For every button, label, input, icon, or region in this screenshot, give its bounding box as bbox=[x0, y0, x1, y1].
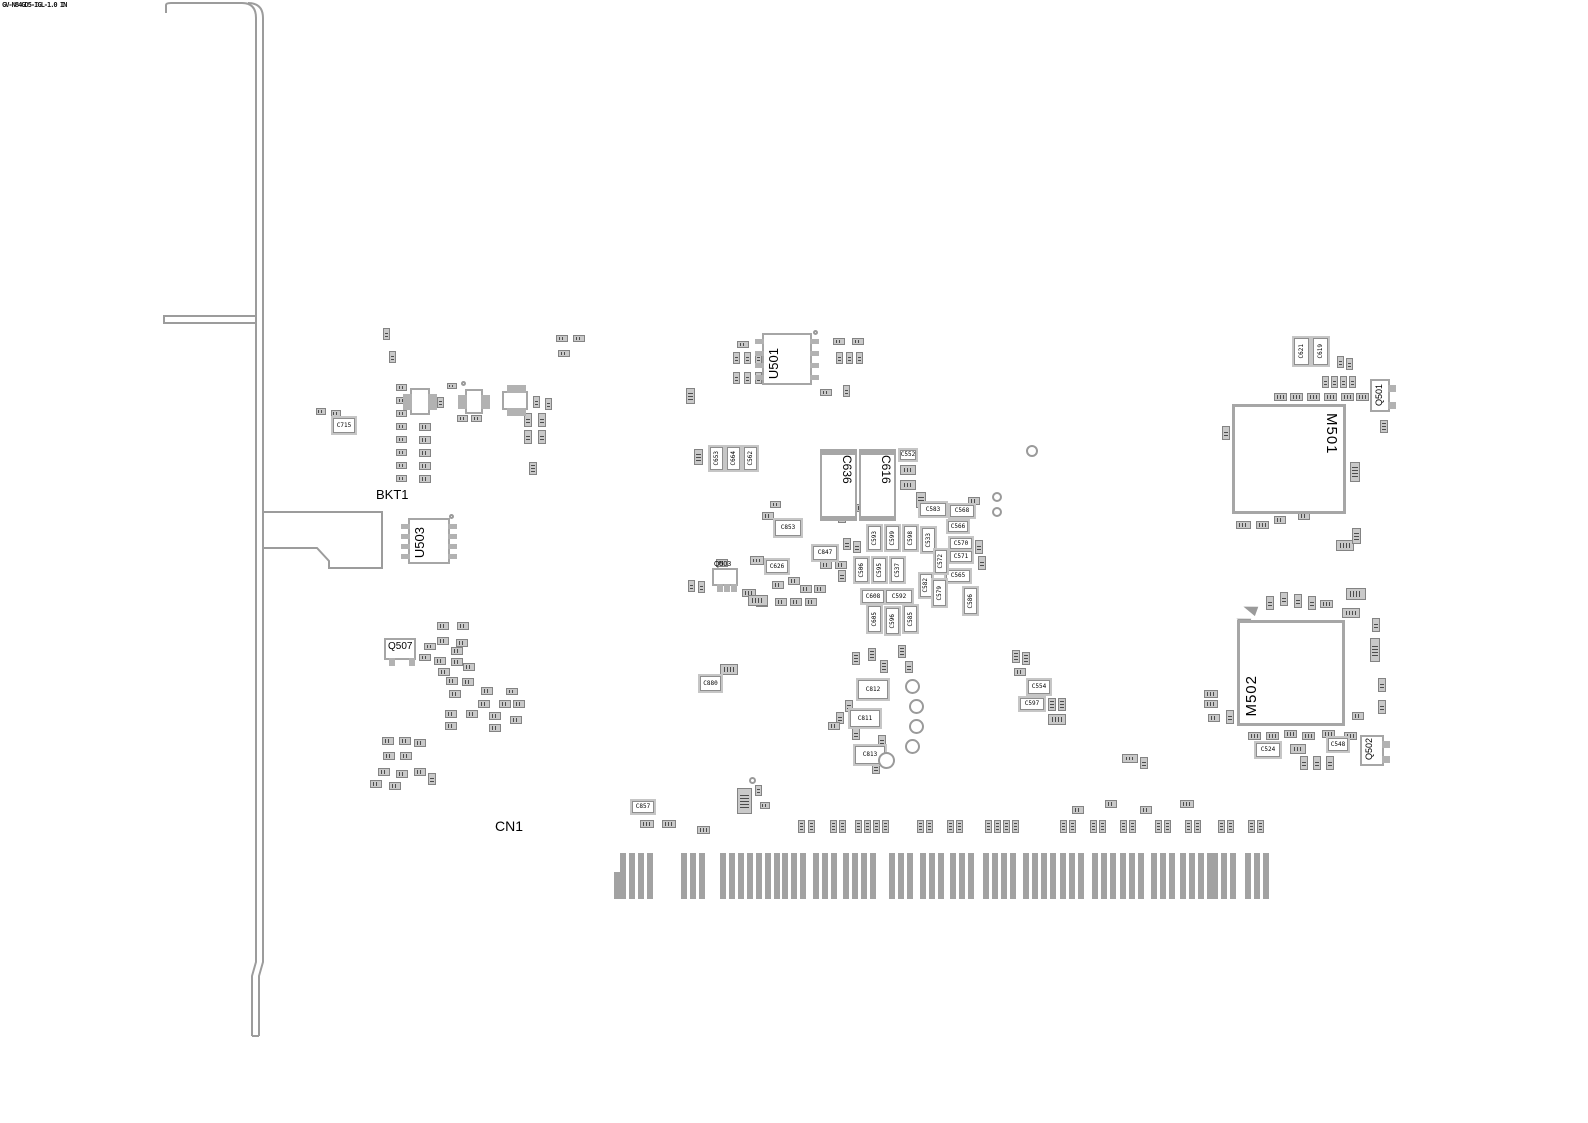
cn1-edge-finger bbox=[1169, 853, 1175, 899]
component-passive bbox=[1208, 714, 1220, 722]
chip-pin bbox=[409, 658, 415, 666]
component-passive bbox=[438, 668, 450, 676]
component-c593: C593 bbox=[868, 526, 881, 550]
component-passive bbox=[396, 436, 407, 443]
chip-m502: M502 bbox=[1237, 620, 1345, 726]
component-label: C621 bbox=[1299, 344, 1305, 358]
cn1-edge-finger bbox=[813, 853, 819, 899]
component-passive bbox=[1022, 652, 1030, 665]
component-passive bbox=[1222, 426, 1230, 440]
component-passive bbox=[573, 335, 585, 342]
component-passive bbox=[880, 660, 888, 673]
component-passive bbox=[697, 826, 710, 834]
component-passive bbox=[538, 413, 546, 427]
component-passive bbox=[419, 423, 431, 431]
bkt1-outline bbox=[263, 512, 382, 568]
component-passive bbox=[868, 648, 876, 661]
component-c608: C608 bbox=[862, 590, 884, 603]
chip-pin bbox=[755, 363, 764, 368]
bracket-inner-edge bbox=[166, 3, 256, 1036]
component-c548: C548 bbox=[1328, 738, 1348, 751]
cn1-edge-finger bbox=[870, 853, 876, 899]
cn1-edge-finger bbox=[774, 853, 780, 899]
component-passive bbox=[1342, 608, 1360, 618]
cn1-edge-finger bbox=[889, 853, 895, 899]
chip-label: U503 bbox=[412, 527, 427, 558]
component-passive bbox=[1194, 820, 1201, 833]
component-passive bbox=[852, 338, 864, 345]
component-passive bbox=[389, 351, 396, 363]
chip-pin bbox=[1388, 385, 1396, 392]
component-passive bbox=[1090, 820, 1097, 833]
component-passive bbox=[744, 372, 751, 384]
via-ring bbox=[749, 777, 756, 784]
component-passive bbox=[1346, 588, 1366, 600]
cn1-edge-finger bbox=[1001, 853, 1007, 899]
component-c597: C597 bbox=[1020, 698, 1044, 710]
cn1-edge-finger bbox=[1060, 853, 1066, 899]
component-passive bbox=[800, 585, 812, 593]
component-passive bbox=[378, 768, 390, 776]
cn1-edge-finger bbox=[747, 853, 753, 899]
component-passive bbox=[510, 716, 522, 724]
pci-bracket-outline bbox=[0, 0, 1588, 1123]
component-passive bbox=[529, 462, 537, 475]
cn1-edge-finger bbox=[959, 853, 965, 899]
chip-pin bbox=[448, 534, 457, 539]
chip-pin bbox=[389, 658, 395, 666]
chip-label: Q507 bbox=[388, 641, 412, 652]
component-c653: C653 bbox=[710, 447, 723, 470]
component-passive bbox=[1099, 820, 1106, 833]
component-passive bbox=[1313, 756, 1321, 770]
chip-q502: Q502 bbox=[1360, 735, 1384, 766]
component-passive bbox=[396, 423, 407, 430]
cn1-edge-finger bbox=[1092, 853, 1098, 899]
via-ring bbox=[905, 739, 920, 754]
component-c570: C570 bbox=[950, 538, 972, 549]
component-passive bbox=[1069, 820, 1076, 833]
component-c537: C537 bbox=[891, 558, 904, 582]
component-passive bbox=[853, 541, 861, 553]
component-passive bbox=[419, 475, 431, 483]
component-passive bbox=[489, 712, 501, 720]
capacitor-c636: C636 bbox=[820, 449, 857, 521]
component-passive bbox=[1122, 754, 1138, 763]
component-c554: C554 bbox=[1028, 680, 1050, 694]
component-passive bbox=[805, 598, 817, 606]
cn1-edge-finger bbox=[1110, 853, 1116, 899]
component-label: C566 bbox=[951, 524, 965, 530]
component-label: C599 bbox=[890, 531, 896, 545]
component-label: C548 bbox=[1331, 742, 1345, 748]
component-passive bbox=[414, 768, 426, 776]
component-passive bbox=[499, 700, 511, 708]
component-passive bbox=[1352, 528, 1361, 544]
component-passive bbox=[1048, 698, 1056, 711]
component-passive bbox=[414, 739, 426, 747]
component-label: C598 bbox=[908, 531, 914, 545]
component-passive bbox=[1284, 730, 1297, 738]
component-passive bbox=[686, 388, 695, 404]
cn1-edge-finger bbox=[1010, 853, 1016, 899]
chip-pin bbox=[448, 524, 457, 529]
component-passive bbox=[1072, 806, 1084, 814]
component-passive bbox=[556, 335, 568, 342]
cn1-edge-finger bbox=[822, 853, 828, 899]
component-label: C524 bbox=[1261, 747, 1275, 753]
component-label: C585 bbox=[908, 612, 914, 626]
cn1-edge-finger bbox=[738, 853, 744, 899]
component-passive bbox=[396, 462, 407, 469]
component-passive bbox=[370, 780, 382, 788]
component-c583: C583 bbox=[920, 503, 946, 516]
component-passive bbox=[383, 752, 395, 760]
component-passive bbox=[419, 462, 431, 470]
component-passive bbox=[489, 724, 501, 732]
component-passive bbox=[1380, 420, 1388, 433]
component-passive bbox=[1014, 668, 1026, 676]
component-passive bbox=[445, 722, 457, 730]
chip-label: Q501 bbox=[1374, 384, 1384, 406]
component-label: C853 bbox=[781, 525, 795, 531]
component-passive bbox=[828, 722, 840, 730]
cn1-edge-finger bbox=[831, 853, 837, 899]
component-label: C568 bbox=[955, 508, 969, 514]
cn1-edge-finger bbox=[907, 853, 913, 899]
component-passive bbox=[382, 737, 394, 745]
component-passive bbox=[396, 449, 407, 456]
chip-pin bbox=[810, 375, 819, 380]
cn1-edge-finger bbox=[782, 853, 788, 899]
component-passive bbox=[843, 538, 851, 550]
component-label: C813 bbox=[863, 752, 877, 758]
component-passive bbox=[445, 710, 457, 718]
component-label: C653 bbox=[714, 451, 720, 465]
chip-u503: U503 bbox=[408, 518, 450, 564]
cn1-edge-finger bbox=[765, 853, 771, 899]
component-label: C619 bbox=[1318, 344, 1324, 358]
component-passive bbox=[400, 752, 412, 760]
cn1-edge-finger bbox=[1120, 853, 1126, 899]
component-passive bbox=[419, 436, 431, 444]
chip-pin bbox=[755, 375, 764, 380]
chip-pin bbox=[724, 584, 730, 592]
component-passive bbox=[873, 820, 880, 833]
component-passive bbox=[1012, 650, 1020, 663]
capacitor-label: C636 bbox=[840, 455, 854, 484]
cn1-edge-finger bbox=[1041, 853, 1047, 899]
component-label: C605 bbox=[872, 612, 878, 626]
component-label: C565 bbox=[951, 573, 965, 579]
component-passive bbox=[788, 577, 800, 585]
component-passive bbox=[1204, 690, 1218, 698]
cn1-edge-finger bbox=[720, 853, 726, 899]
component-label: C579 bbox=[937, 586, 943, 600]
chip-pin bbox=[755, 339, 764, 344]
component-passive bbox=[733, 352, 740, 364]
cn1-edge-finger bbox=[1032, 853, 1038, 899]
component-passive bbox=[836, 352, 843, 364]
component-passive bbox=[856, 352, 863, 364]
component-passive bbox=[1155, 820, 1162, 833]
via-ring bbox=[909, 719, 924, 734]
cn1-edge-finger bbox=[983, 853, 989, 899]
component-passive bbox=[917, 820, 924, 833]
chip-label: M501 bbox=[1323, 413, 1340, 455]
cn1-edge-finger bbox=[638, 853, 644, 899]
component-label: C506 bbox=[859, 563, 865, 577]
component-label: C596 bbox=[890, 614, 896, 628]
component-passive bbox=[419, 449, 431, 457]
component-label: C572 bbox=[938, 554, 944, 568]
component-passive bbox=[1320, 600, 1333, 608]
component-c857: C857 bbox=[632, 801, 654, 813]
chip-pin bbox=[810, 339, 819, 344]
component-passive bbox=[1218, 820, 1225, 833]
component-passive bbox=[419, 654, 431, 661]
component-passive bbox=[839, 820, 846, 833]
component-passive bbox=[1274, 516, 1286, 524]
component-passive bbox=[533, 396, 540, 408]
component-passive bbox=[978, 556, 986, 570]
component-passive bbox=[1352, 712, 1364, 720]
component-c605: C605 bbox=[868, 606, 881, 632]
component-passive bbox=[1350, 462, 1360, 482]
cn1-edge-finger bbox=[629, 853, 635, 899]
component-label: C593 bbox=[872, 531, 878, 545]
cn1-edge-finger bbox=[852, 853, 858, 899]
cn1-edge-finger bbox=[1101, 853, 1107, 899]
cn1-edge-finger bbox=[1245, 853, 1251, 899]
via-ring bbox=[905, 679, 920, 694]
component-c552: C552 bbox=[900, 450, 916, 460]
chip-label: Q503 bbox=[714, 561, 731, 568]
component-passive bbox=[864, 820, 871, 833]
component-passive bbox=[1129, 820, 1136, 833]
chip-pin bbox=[403, 405, 412, 410]
component-passive bbox=[1340, 376, 1347, 388]
component-passive bbox=[814, 585, 826, 593]
component-label: C597 bbox=[1025, 701, 1039, 707]
component-passive bbox=[760, 802, 770, 809]
chip-pin bbox=[717, 584, 723, 592]
component-label: C537 bbox=[895, 563, 901, 577]
component-passive bbox=[1302, 732, 1315, 740]
component-passive bbox=[1257, 820, 1264, 833]
pcb-assembly-drawing: GV-N84GD5-IGL-1.0 IN BKT1 CN1 C715C653C6… bbox=[0, 0, 1588, 1123]
component-c596: C596 bbox=[886, 608, 899, 634]
component-passive bbox=[770, 501, 781, 508]
component-passive bbox=[882, 820, 889, 833]
component-label: C880 bbox=[703, 681, 717, 687]
component-passive bbox=[1337, 356, 1344, 368]
component-passive bbox=[733, 372, 740, 384]
chip-u501: U501 bbox=[762, 333, 812, 385]
component-passive bbox=[737, 341, 749, 348]
chip-label: U501 bbox=[766, 348, 781, 379]
component-passive bbox=[755, 785, 762, 796]
component-c598: C598 bbox=[904, 526, 917, 550]
cn1-edge-finger bbox=[1189, 853, 1195, 899]
component-c506: C506 bbox=[855, 558, 868, 582]
chip-pin bbox=[428, 405, 437, 410]
component-passive bbox=[457, 415, 468, 422]
component-passive bbox=[1003, 820, 1010, 833]
component-c533: C533 bbox=[922, 528, 935, 552]
board-part-number: GV-N84GD5-IGL-1.0 IN bbox=[2, 1, 66, 9]
component-passive bbox=[900, 465, 916, 475]
component-passive bbox=[446, 677, 458, 685]
component-c812: C812 bbox=[858, 680, 888, 699]
component-passive bbox=[396, 770, 408, 778]
component-passive bbox=[720, 664, 738, 675]
component-passive bbox=[316, 408, 326, 415]
component-passive bbox=[471, 415, 482, 422]
component-passive bbox=[456, 639, 468, 647]
component-passive bbox=[1370, 638, 1380, 662]
component-passive bbox=[790, 598, 802, 606]
component-passive bbox=[437, 622, 449, 630]
bracket-flange bbox=[164, 316, 256, 323]
via-ring bbox=[992, 507, 1002, 517]
component-passive bbox=[1294, 594, 1302, 608]
component-passive bbox=[852, 728, 860, 740]
component-passive bbox=[772, 581, 784, 589]
component-passive bbox=[947, 820, 954, 833]
component-passive bbox=[545, 398, 552, 410]
component-passive bbox=[994, 820, 1001, 833]
component-label: C552 bbox=[901, 452, 915, 458]
component-passive bbox=[506, 688, 518, 695]
chip-pin bbox=[458, 404, 467, 409]
component-passive bbox=[524, 430, 532, 444]
component-c599: C599 bbox=[886, 526, 899, 550]
chip-q507: Q507 bbox=[384, 638, 416, 660]
component-passive bbox=[975, 540, 983, 554]
component-passive bbox=[1341, 393, 1354, 401]
component-label: C583 bbox=[926, 507, 940, 513]
component-passive bbox=[900, 480, 916, 490]
chip-small-ic bbox=[502, 391, 528, 410]
component-passive bbox=[838, 570, 846, 582]
component-passive bbox=[558, 350, 570, 357]
cn1-edge-finger bbox=[1221, 853, 1227, 899]
component-passive bbox=[640, 820, 654, 828]
component-passive bbox=[1227, 820, 1234, 833]
cn1-edge-finger bbox=[699, 853, 705, 899]
component-passive bbox=[820, 561, 832, 569]
component-passive bbox=[478, 700, 490, 708]
chip-small-ic bbox=[410, 388, 430, 415]
component-c880: C880 bbox=[700, 676, 721, 691]
cn1-label: CN1 bbox=[495, 818, 523, 834]
component-label: C570 bbox=[954, 541, 968, 547]
component-passive bbox=[905, 661, 913, 673]
component-passive bbox=[1274, 393, 1287, 401]
component-passive bbox=[1372, 618, 1380, 632]
component-label: C715 bbox=[337, 423, 351, 429]
cn1-edge-lead bbox=[614, 872, 621, 899]
component-passive bbox=[1060, 820, 1067, 833]
component-label: C592 bbox=[892, 594, 906, 600]
component-passive bbox=[437, 397, 444, 408]
chip-pin bbox=[481, 404, 490, 409]
component-passive bbox=[481, 687, 493, 695]
component-passive bbox=[1180, 800, 1194, 808]
component-c811: C811 bbox=[850, 710, 880, 727]
cn1-edge-finger bbox=[1160, 853, 1166, 899]
component-label: C582 bbox=[923, 578, 929, 592]
component-passive bbox=[843, 385, 850, 397]
component-passive bbox=[447, 383, 457, 389]
component-passive bbox=[399, 737, 411, 745]
component-passive bbox=[1308, 596, 1316, 610]
via-ring bbox=[813, 330, 818, 335]
cn1-edge-finger bbox=[1230, 853, 1236, 899]
cn1-edge-finger bbox=[1138, 853, 1144, 899]
cn1-edge-finger bbox=[1023, 853, 1029, 899]
chip-pin bbox=[521, 408, 526, 416]
cn1-edge-finger bbox=[800, 853, 806, 899]
capacitor-c616: C616 bbox=[859, 449, 896, 521]
component-passive bbox=[694, 449, 703, 465]
component-passive bbox=[1266, 732, 1279, 740]
cn1-edge-finger bbox=[791, 853, 797, 899]
component-passive bbox=[1290, 393, 1303, 401]
cn1-edge-finger bbox=[1254, 853, 1260, 899]
component-passive bbox=[389, 782, 401, 790]
chip-q503: Q503 bbox=[712, 568, 738, 586]
component-passive bbox=[396, 475, 407, 482]
component-passive bbox=[457, 622, 469, 630]
cn1-edge-finger bbox=[992, 853, 998, 899]
component-c853: C853 bbox=[775, 520, 801, 536]
component-passive bbox=[835, 561, 847, 569]
component-c595: C595 bbox=[873, 558, 886, 582]
component-c579: C579 bbox=[933, 580, 946, 606]
component-label: C586 bbox=[968, 594, 974, 608]
component-passive bbox=[1324, 393, 1337, 401]
component-passive bbox=[1120, 820, 1127, 833]
chip-pin bbox=[401, 544, 410, 549]
component-passive bbox=[1356, 393, 1369, 401]
chip-pin bbox=[448, 554, 457, 559]
chip-pin bbox=[401, 524, 410, 529]
via-ring bbox=[992, 492, 1002, 502]
component-c715: C715 bbox=[333, 418, 355, 433]
component-passive bbox=[737, 788, 752, 814]
cn1-edge-finger bbox=[843, 853, 849, 899]
cn1-edge-finger bbox=[690, 853, 696, 899]
cn1-edge-finger bbox=[920, 853, 926, 899]
cn1-edge-finger bbox=[861, 853, 867, 899]
component-passive bbox=[1307, 393, 1320, 401]
cn1-edge-finger bbox=[929, 853, 935, 899]
component-passive bbox=[1300, 756, 1308, 770]
component-c582: C582 bbox=[920, 574, 932, 597]
component-passive bbox=[451, 658, 463, 666]
component-label: C626 bbox=[770, 564, 784, 570]
component-passive bbox=[1290, 744, 1306, 754]
component-passive bbox=[1378, 678, 1386, 692]
component-passive bbox=[1048, 714, 1066, 725]
component-passive bbox=[820, 389, 832, 396]
cn1-edge-finger bbox=[1129, 853, 1135, 899]
component-passive bbox=[437, 637, 449, 645]
component-label: C595 bbox=[877, 563, 883, 577]
component-c626: C626 bbox=[766, 560, 788, 573]
